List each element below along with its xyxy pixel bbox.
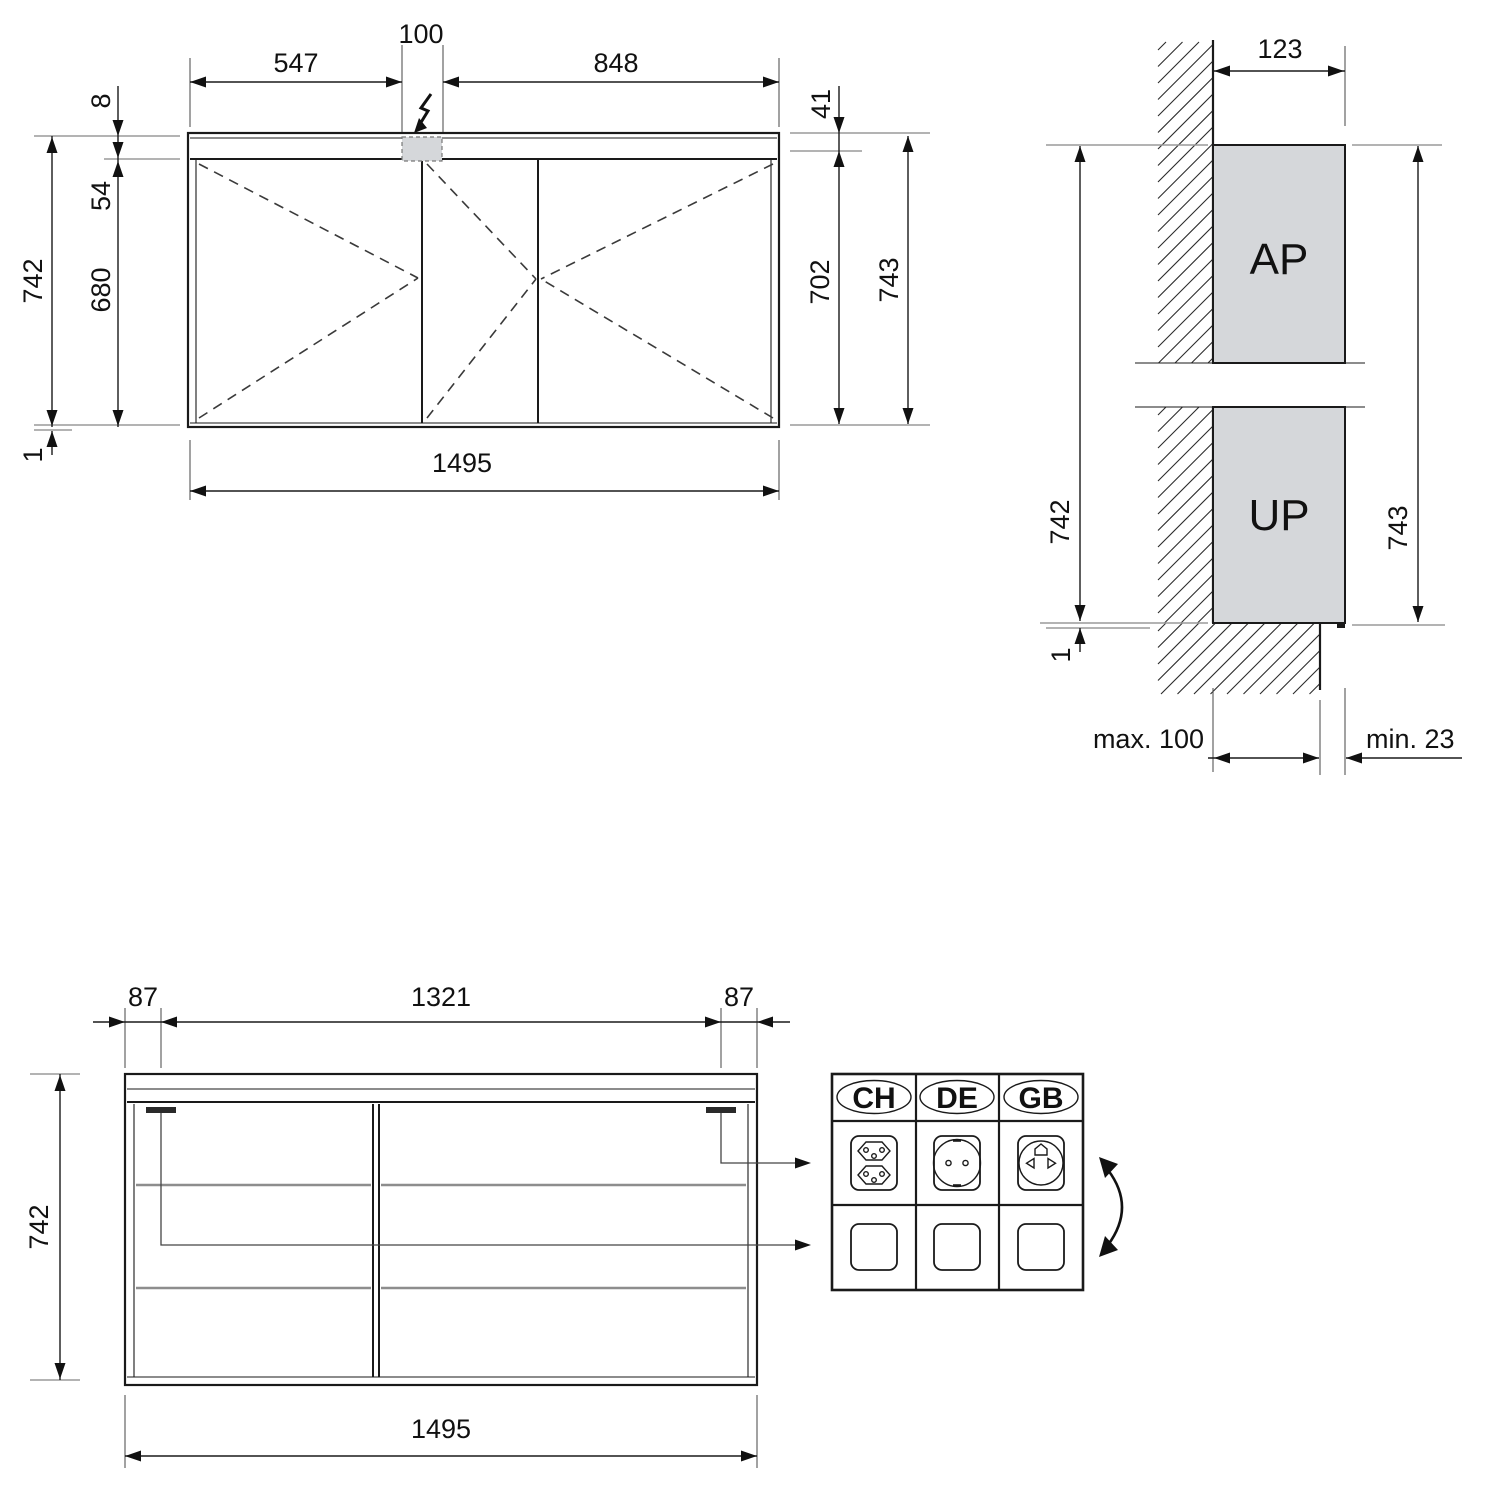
- dim-front-mirror-height: 702: [805, 259, 835, 304]
- arrowhead: [705, 1017, 721, 1028]
- swap-rotation-arrow: [1099, 1157, 1122, 1257]
- arrowhead: [795, 1240, 811, 1251]
- arrowhead: [834, 151, 845, 167]
- arrowhead: [161, 1017, 177, 1028]
- country-code-gb: GB: [1019, 1082, 1064, 1115]
- arrowhead: [1328, 66, 1344, 77]
- dim-plan-height: 742: [24, 1204, 54, 1249]
- arrowhead: [1075, 146, 1086, 162]
- hatch-line: [1158, 259, 1213, 314]
- dim-front-connection: 100: [398, 19, 443, 49]
- dim-plan-spacing: 1321: [411, 982, 471, 1012]
- hatch-line: [1158, 459, 1213, 514]
- dim-plan-offset-right: 87: [724, 982, 754, 1012]
- dim-front-top-gap: 8: [86, 93, 116, 108]
- side-cabinet: AP UP: [1213, 145, 1345, 628]
- plan-dimensions: 87 1321 87 742 1495: [24, 982, 790, 1468]
- hatch-line: [1175, 325, 1213, 363]
- callout-line-left-socket: [161, 1113, 798, 1245]
- dim-front-light-strip: 54: [86, 181, 116, 211]
- hatch-line: [1293, 667, 1320, 694]
- arrowhead: [903, 136, 914, 152]
- hatch-line: [1158, 210, 1213, 265]
- hatch-line: [1198, 608, 1214, 624]
- hatch-line: [1158, 42, 1199, 83]
- front-cabinet-body: [188, 133, 779, 427]
- hatch-line: [1158, 42, 1166, 50]
- hatch-line: [1158, 144, 1213, 199]
- hatch-line: [1158, 492, 1213, 547]
- callout-line-right-socket: [721, 1113, 798, 1163]
- hatch-line: [1158, 78, 1213, 133]
- arrowhead: [1413, 146, 1424, 162]
- internal-socket-right: [706, 1107, 736, 1113]
- hatch-line: [1158, 45, 1213, 100]
- hatch-line: [1277, 651, 1321, 695]
- dim-side-max-recess: max. 100: [1093, 724, 1204, 754]
- arrowhead: [1346, 753, 1362, 764]
- arrowhead: [47, 137, 58, 153]
- hatch-line: [1158, 177, 1213, 232]
- arrowhead: [55, 1363, 66, 1379]
- lightning-bolt-head: [414, 118, 427, 133]
- arrowhead: [903, 408, 914, 424]
- arrowhead: [125, 1451, 141, 1462]
- arrowhead: [834, 408, 845, 424]
- hatch-line: [1158, 426, 1213, 481]
- arrowhead: [1075, 628, 1086, 644]
- hatch-line: [1158, 623, 1216, 681]
- dim-front-top-profile: 41: [806, 89, 836, 119]
- internal-socket-left: [146, 1107, 176, 1113]
- arrowhead: [113, 120, 124, 136]
- label-surface-mounted: AP: [1250, 235, 1309, 284]
- dim-front-right-door: 848: [593, 48, 638, 78]
- dim-side-min-protrusion: min. 23: [1366, 724, 1455, 754]
- arrowhead: [386, 77, 402, 88]
- hatch-line: [1260, 634, 1320, 694]
- arrowhead: [1075, 605, 1086, 621]
- hatch-line: [1158, 509, 1213, 564]
- hatch-line: [1158, 623, 1199, 664]
- dim-front-total-height: 743: [874, 257, 904, 302]
- arrowhead: [1214, 753, 1230, 764]
- hatch-line: [1158, 292, 1213, 347]
- arrowhead: [1214, 66, 1230, 77]
- dim-side-bottom-gap: 1: [1046, 647, 1076, 662]
- arrowhead: [443, 77, 459, 88]
- hatch-line: [1181, 591, 1213, 623]
- dim-plan-offset-left: 87: [128, 982, 158, 1012]
- door-swing-lines: [199, 164, 773, 418]
- hatch-line: [1158, 226, 1213, 281]
- hatch-line: [1158, 542, 1213, 597]
- front-view: 547 100 848 8 54 680 742 1 41 702 743 14…: [18, 19, 930, 500]
- arrowhead: [113, 161, 124, 177]
- country-code-de: DE: [936, 1082, 978, 1115]
- arrowhead: [109, 1017, 125, 1028]
- arrowhead: [190, 77, 206, 88]
- hatch-line: [1158, 127, 1213, 182]
- hatch-line: [1158, 276, 1213, 331]
- hatch-line: [1158, 193, 1213, 248]
- dim-front-left-door: 547: [273, 48, 318, 78]
- hatch-line: [1158, 558, 1213, 613]
- arrowhead: [47, 431, 58, 447]
- hatch-line: [1158, 94, 1213, 149]
- power-connection-box: [402, 137, 442, 161]
- arrowhead: [757, 1017, 773, 1028]
- dim-front-door-height: 680: [86, 267, 116, 312]
- arrowhead: [113, 410, 124, 426]
- label-flush-mounted: UP: [1248, 491, 1309, 540]
- arrowhead: [741, 1451, 757, 1462]
- mirror-cabinet-dimension-drawing: 547 100 848 8 54 680 742 1 41 702 743 14…: [0, 0, 1500, 1500]
- hatch-line: [1158, 111, 1213, 166]
- arrowhead: [1303, 753, 1319, 764]
- plan-view: 87 1321 87 742 1495: [24, 982, 798, 1468]
- dim-front-bottom-gap: 1: [18, 447, 48, 462]
- arrowhead: [763, 486, 779, 497]
- hatch-line: [1158, 443, 1213, 498]
- arrowhead: [190, 486, 206, 497]
- arrowhead: [834, 117, 845, 133]
- hatch-line: [1158, 61, 1213, 116]
- hatch-line: [1158, 407, 1166, 415]
- dim-side-body-height: 742: [1045, 499, 1075, 544]
- dim-side-total-height: 743: [1383, 505, 1413, 550]
- arrowhead: [47, 410, 58, 426]
- bottom-lip: [1337, 623, 1345, 628]
- socket-table: CH DE GB: [832, 1074, 1122, 1290]
- dim-side-depth: 123: [1257, 34, 1302, 64]
- hatch-line: [1158, 476, 1213, 531]
- side-view: AP UP 123 742 743 1 max. 100 min. 23: [1040, 34, 1462, 775]
- hatch-line: [1158, 623, 1166, 631]
- hatch-line: [1158, 407, 1199, 448]
- hatch-line: [1158, 243, 1213, 298]
- hatch-line: [1310, 684, 1321, 695]
- arrowhead: [1413, 606, 1424, 622]
- arrowhead: [113, 142, 124, 158]
- arrowhead: [795, 1158, 811, 1169]
- dim-plan-width: 1495: [411, 1414, 471, 1444]
- technical-drawing-page: 547 100 848 8 54 680 742 1 41 702 743 14…: [0, 0, 1500, 1500]
- plan-cabinet-outline: [125, 1074, 757, 1385]
- lightning-bolt-icon: [420, 94, 431, 124]
- front-power-connection: [402, 94, 442, 161]
- hatch-line: [1158, 525, 1213, 580]
- arrowhead: [763, 77, 779, 88]
- dim-front-total-width: 1495: [432, 448, 492, 478]
- front-cabinet-outline: [188, 133, 779, 427]
- country-code-ch: CH: [852, 1082, 895, 1115]
- hatch-line: [1158, 410, 1213, 465]
- arrowhead: [55, 1075, 66, 1091]
- plan-cabinet-body: [125, 1074, 798, 1385]
- dim-front-body-height: 742: [18, 258, 48, 303]
- hatch-line: [1158, 160, 1213, 215]
- hatch-line: [1192, 342, 1214, 364]
- hatch-line: [1159, 309, 1214, 364]
